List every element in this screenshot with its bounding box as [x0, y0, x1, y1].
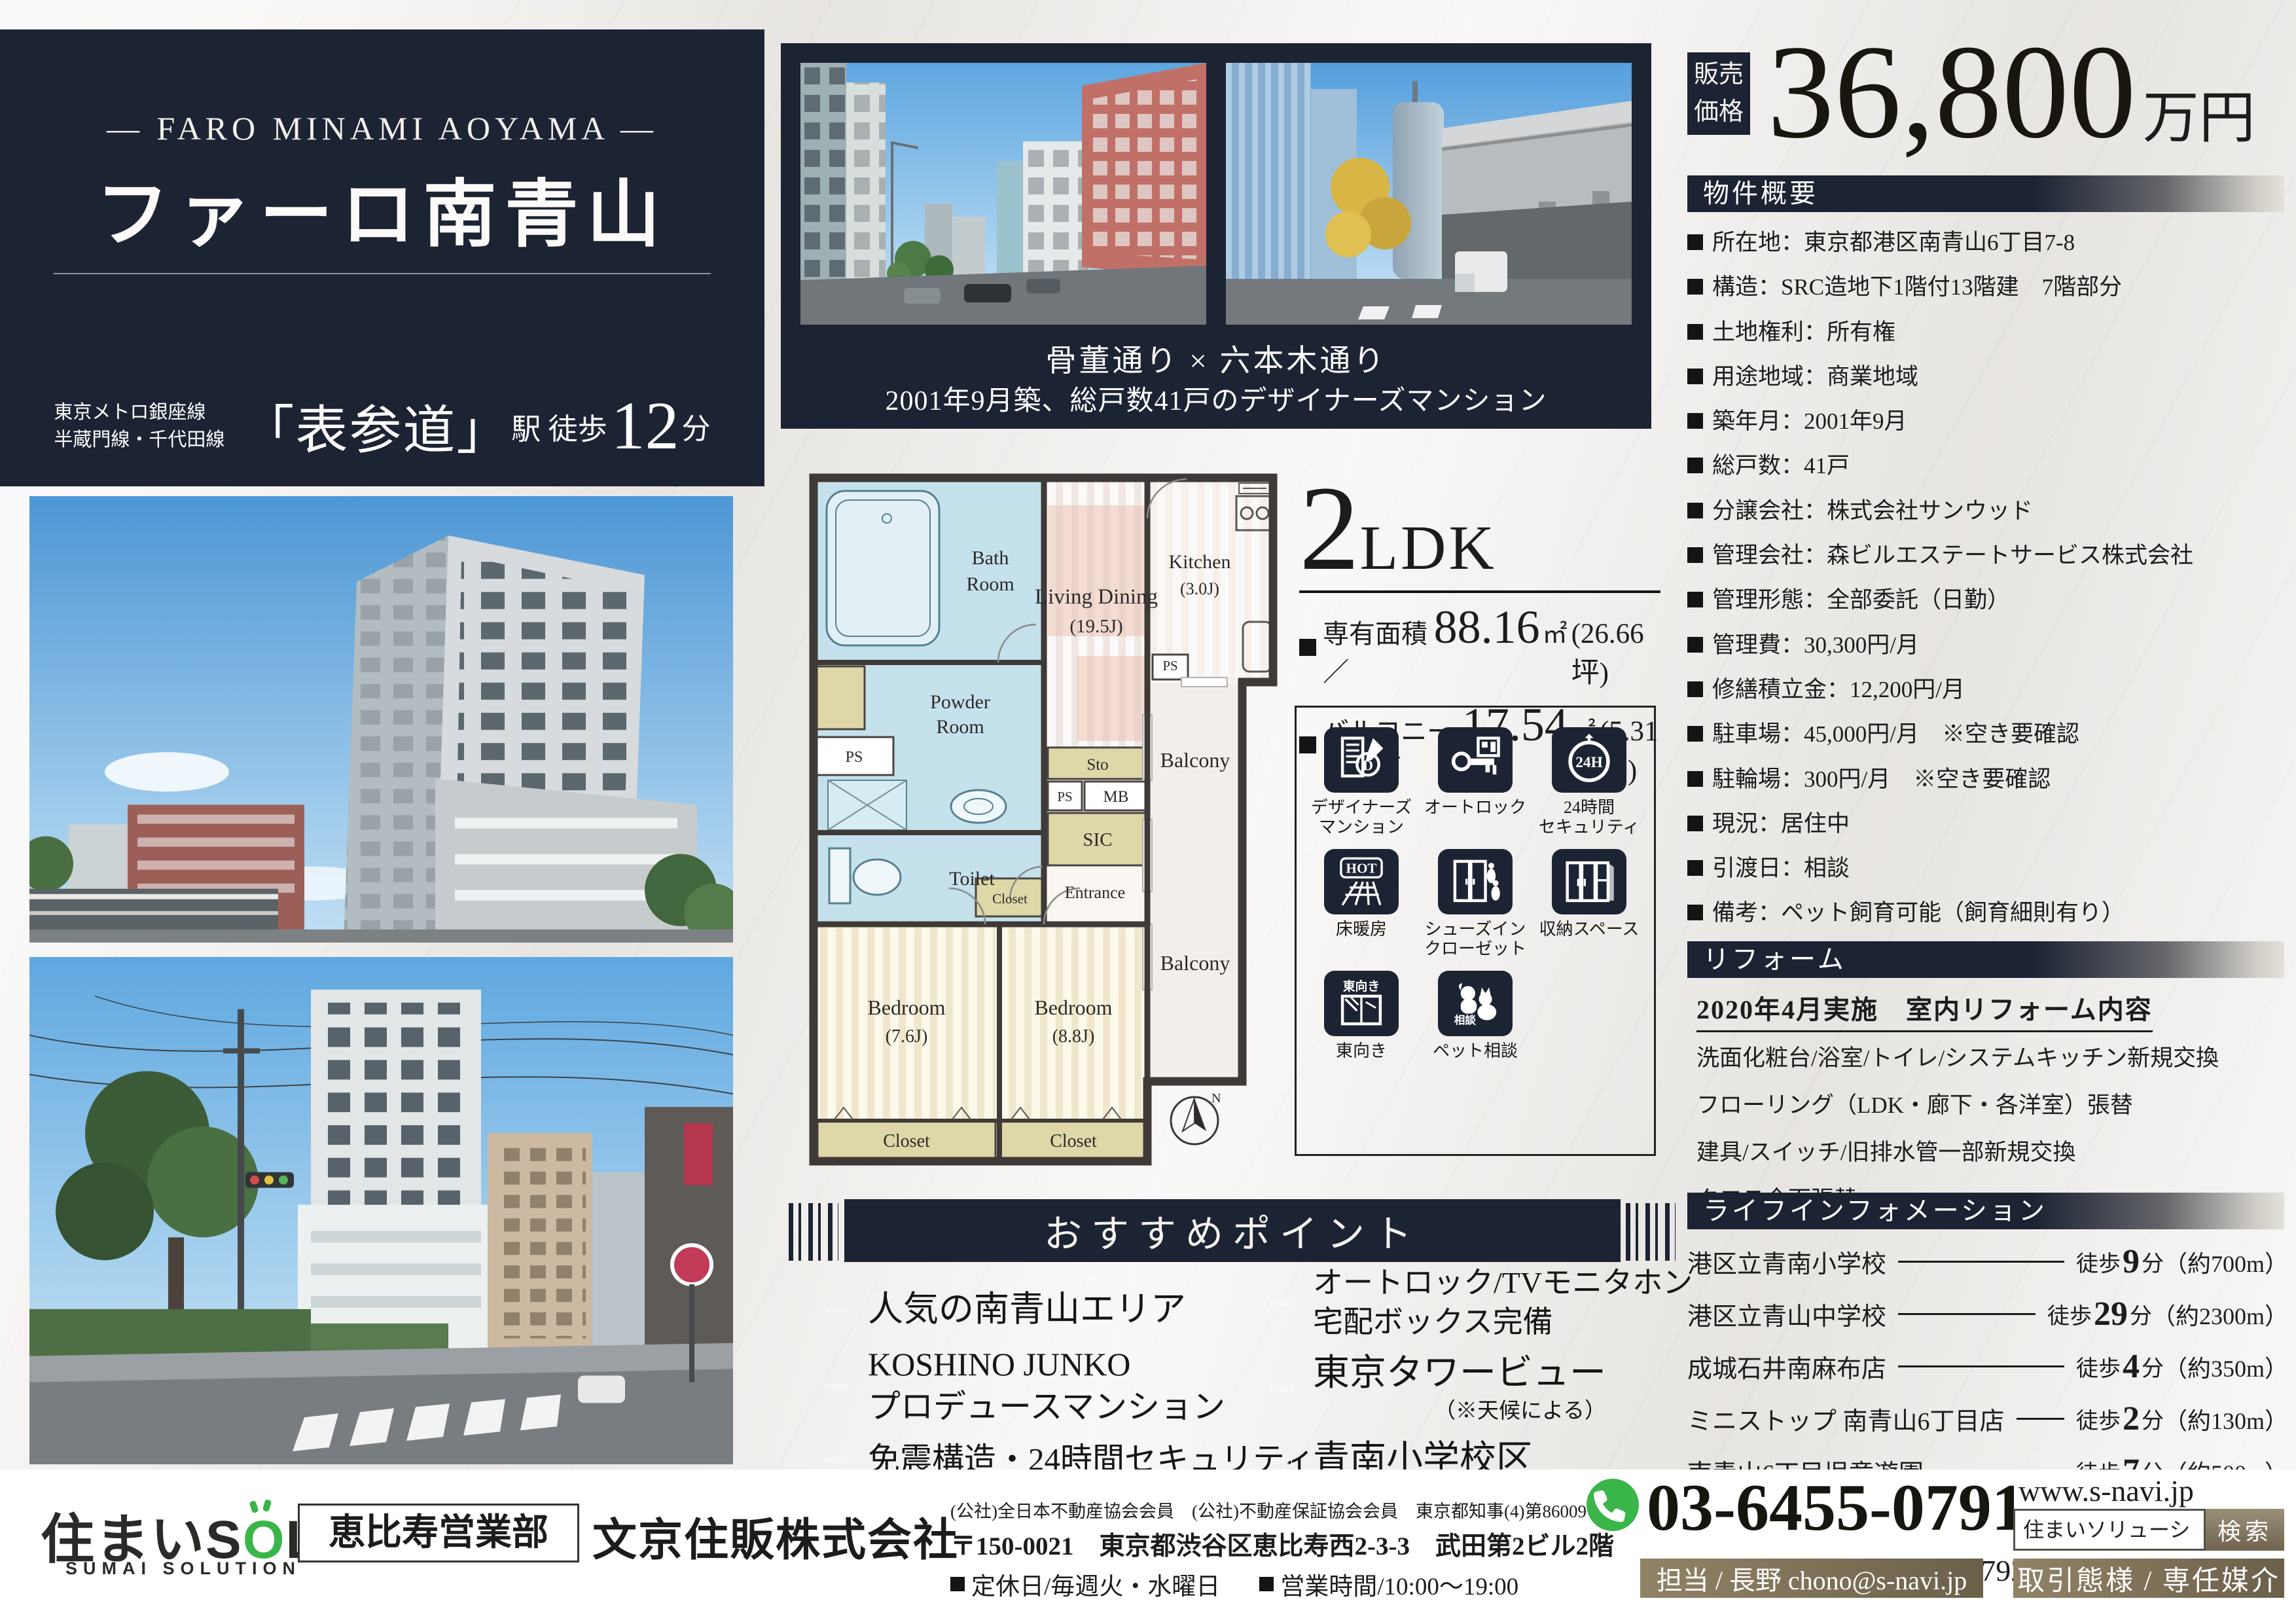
stripe-decoration-right [1626, 1203, 1676, 1261]
room-label-sic: SIC [1083, 829, 1112, 850]
room-label-living: Living Dining [1035, 585, 1158, 609]
room-label-bath: Bath [972, 547, 1009, 569]
svg-text:Closet: Closet [883, 1131, 930, 1151]
price: 36,800 万円 [1767, 25, 2255, 159]
svg-text:Room: Room [936, 716, 984, 738]
svg-text:(7.6J): (7.6J) [886, 1026, 928, 1047]
floor-plan: N Bath Room PS Powder Room Toilet Sto PS… [789, 466, 1289, 1176]
search-widget: 住まいソリューション 検索 [2013, 1509, 2284, 1551]
property-name-en: — FARO MINAMI AOYAMA — [0, 109, 764, 147]
svg-text:POINT: POINT [1270, 1456, 1295, 1466]
room-label-entrance: Entrance [1065, 883, 1125, 902]
hero-panel: — FARO MINAMI AOYAMA — ファーロ南青山 東京メトロ銀座線 … [0, 29, 764, 486]
feature-autolock: オートロック [1420, 727, 1530, 837]
association-memberships: (公社)全日本不動産協会会員 (公社)不動産保証協会会員 東京都知事(4)第86… [950, 1497, 1604, 1523]
room-label-balcony-1: Balcony [1160, 748, 1230, 772]
company-name: 文京住販株式会社 [592, 1504, 959, 1568]
overview-row: 管理会社：森ビルエステートサービス株式会社 [1687, 542, 2288, 569]
sales-department-box: 恵比寿営業部 [298, 1504, 579, 1562]
feature-storage: 収納スペース [1534, 849, 1644, 959]
svg-text:POINT: POINT [825, 1456, 850, 1466]
room-label-toilet: Toilet [949, 868, 995, 890]
overview-row: 駐輪場：300円/月 ※空き要確認 [1687, 766, 2288, 793]
svg-text:(3.0J): (3.0J) [1180, 579, 1219, 598]
room-label-ps: PS [846, 749, 863, 766]
contact-person-badge: 担当 / 長野 chono@s-navi.jp [1640, 1559, 1983, 1598]
overview-row: 管理形態：全部委託（日勤） [1687, 586, 2288, 613]
section-header-overview: 物件概要 [1687, 175, 2284, 212]
room-label-closet: Closet [992, 891, 1028, 907]
search-button[interactable]: 検索 [2206, 1509, 2284, 1551]
svg-text:相談: 相談 [1454, 1013, 1477, 1026]
photo-kotto-dori [800, 63, 1206, 325]
feature-floor-heating: HOT 床暖房 [1306, 849, 1416, 959]
price-unit: 万円 [2143, 71, 2255, 153]
pet-consult-icon: 相談 [1438, 971, 1513, 1036]
room-label-bedroom-2: Bedroom [1034, 996, 1112, 1019]
point-item-4: POINT オートロック/TVモニタホン 宅配ボックス完備 [1262, 1263, 1693, 1342]
svg-text:POINT: POINT [1270, 1384, 1295, 1394]
svg-text:Closet: Closet [1050, 1131, 1097, 1151]
walk-minutes: 12 [611, 392, 679, 460]
feature-designer-mansion: D デザイナーズ マンション [1306, 727, 1416, 837]
exterior-photo-1 [29, 496, 733, 943]
overview-row: 分譲会社：株式会社サンウッド [1687, 497, 2288, 524]
life-info-row: 港区立青山中学校 徒歩29分（約2300m） [1687, 1295, 2288, 1333]
reform-subtitle: 2020年4月実施 室内リフォーム内容 [1696, 988, 2153, 1032]
photo-caption-streets: 骨董通り × 六本木通り [781, 335, 1651, 380]
property-overview-list: 所在地：東京都港区南青山6丁目7-8 構造：SRC造地下1階付13階建 7階部分… [1687, 229, 2288, 945]
room-label-kitchen: Kitchen [1169, 551, 1231, 573]
station-name: 「表参道」 [242, 388, 510, 464]
svg-text:東向き: 東向き [1343, 979, 1380, 994]
weather-note: （※天候による） [1313, 1398, 1606, 1426]
room-label-mb: MB [1103, 788, 1129, 806]
point-badge: POINT [825, 1306, 850, 1315]
overview-row: 築年月：2001年9月 [1687, 408, 2288, 435]
east-facing-icon: 東向き [1324, 971, 1399, 1036]
square-bullet [1299, 639, 1316, 656]
business-hours: 定休日/毎週火・水曜日 営業時間/10:00～19:00 [950, 1566, 1518, 1602]
svg-text:PS: PS [1162, 658, 1177, 674]
point-item-1: POINT 人気の南青山エリア [817, 1278, 1186, 1341]
overview-row: 土地権利：所有権 [1687, 319, 2288, 346]
leader-line [1898, 1261, 2064, 1263]
location-photos-panel: 骨董通り × 六本木通り 2001年9月築、総戸数41戸のデザイナーズマンション [781, 43, 1651, 429]
life-info-row: 港区立青南小学校 徒歩9分（約700m） [1687, 1242, 2288, 1281]
real-estate-flyer: { "colors": { "navy":"#1c2433", "green":… [0, 0, 2296, 1624]
exclusive-area: 専有面積／ 88.16 ㎡ (26.66坪) [1299, 604, 1662, 691]
search-input[interactable]: 住まいソリューション [2013, 1509, 2206, 1551]
logo-subtitle: SUMAI SOLUTION [65, 1559, 301, 1579]
life-information-list: 港区立青南小学校 徒歩9分（約700m） 港区立青山中学校 徒歩29分（約230… [1687, 1242, 2288, 1504]
photo-caption-building: 2001年9月築、総戸数41戸のデザイナーズマンション [781, 378, 1651, 418]
section-header-life-info: ライフインフォメーション [1687, 1193, 2284, 1229]
train-lines: 東京メトロ銀座線 半蔵門線・千代田線 [54, 399, 224, 454]
property-name: ファーロ南青山 [0, 155, 764, 261]
divider [54, 273, 711, 274]
svg-text:(19.5J): (19.5J) [1069, 616, 1122, 637]
designer-mansion-icon: D [1324, 727, 1399, 793]
price-label-badge: 販売 価格 [1687, 52, 1750, 135]
feature-icons-panel: D デザイナーズ マンション オートロック 24H 24時間 セキュリテ [1295, 706, 1656, 1156]
room-label-powder: Powder [930, 691, 990, 713]
station-access: 東京メトロ銀座線 半蔵門線・千代田線 「表参道」 駅 徒歩 12 分 [0, 388, 764, 464]
feature-24h-security: 24H 24時間 セキュリティ [1534, 727, 1644, 837]
transaction-type-badge: 取引態様 / 専任媒介 [2013, 1559, 2284, 1598]
feature-shoes-in-closet: シューズイン クローゼット [1420, 849, 1530, 959]
overview-row: 用途地域：商業地域 [1687, 363, 2288, 390]
overview-row: 備考：ペット飼育可能（飼育細則有り） [1687, 899, 2288, 926]
section-header-reform: リフォーム [1687, 941, 2284, 978]
svg-text:POINT: POINT [1270, 1299, 1295, 1308]
feature-east-facing: 東向き 東向き [1306, 971, 1416, 1061]
overview-row: 所在地：東京都港区南青山6丁目7-8 [1687, 229, 2288, 256]
footer: 住まいSOL SUMAI SOLUTION 恵比寿営業部 文京住販株式会社 (公… [0, 1470, 2296, 1624]
life-info-row: 成城石井南麻布店 徒歩4分（約350m） [1687, 1347, 2288, 1386]
overview-row: 引渡日：相談 [1687, 855, 2288, 882]
overview-row: 管理費：30,300円/月 [1687, 632, 2288, 659]
overview-row: 修繕積立金：12,200円/月 [1687, 676, 2288, 703]
phone-icon [1587, 1479, 1639, 1531]
website-url[interactable]: www.s-navi.jp [2018, 1473, 2194, 1508]
point-item-5: POINT 東京タワービュー （※天候による） [1262, 1350, 1606, 1426]
company-address: 〒150-0021 東京都渋谷区恵比寿西2-3-3 武田第2ビル2階 [950, 1526, 1614, 1562]
phone-number: 03-6455-0791 [1647, 1470, 2025, 1546]
room-label-sto: Sto [1086, 756, 1108, 774]
price-amount: 36,800 [1767, 25, 2136, 159]
overview-row: 現況：居住中 [1687, 810, 2288, 837]
autolock-icon [1438, 727, 1513, 793]
photo-roppongi-dori [1226, 63, 1632, 325]
svg-text:POINT: POINT [825, 1382, 850, 1392]
room-label-bedroom-1: Bedroom [867, 996, 945, 1019]
svg-text:24H: 24H [1575, 754, 1602, 771]
security-24h-icon: 24H [1552, 727, 1626, 793]
life-info-row: ミニストップ 南青山6丁目店 徒歩2分（約130m） [1687, 1399, 2288, 1438]
points-header: おすすめポイント [844, 1199, 1621, 1262]
layout-type: 2 LDK [1299, 468, 1662, 589]
svg-text:Room: Room [966, 573, 1014, 595]
exterior-photo-2 [29, 957, 733, 1464]
overview-row: 駐車場：45,000円/月 ※空き要確認 [1687, 721, 2288, 748]
floor-heating-icon: HOT [1324, 849, 1399, 914]
svg-text:(8.8J): (8.8J) [1052, 1026, 1095, 1047]
room-label-balcony-2: Balcony [1160, 951, 1230, 975]
stripe-decoration-left [789, 1203, 838, 1261]
compass-north-label: N [1211, 1091, 1221, 1106]
feature-pet: 相談 ペット相談 [1420, 971, 1530, 1061]
storage-space-icon [1552, 849, 1626, 914]
shoes-in-closet-icon [1438, 849, 1513, 914]
overview-row: 総戸数：41戸 [1687, 452, 2288, 479]
svg-text:HOT: HOT [1346, 860, 1377, 876]
svg-text:PS: PS [1057, 789, 1072, 804]
overview-row: 構造：SRC造地下1階付13階建 7階部分 [1687, 274, 2288, 300]
point-item-2: POINT KOSHINO JUNKO プロデュースマンション [817, 1343, 1225, 1428]
